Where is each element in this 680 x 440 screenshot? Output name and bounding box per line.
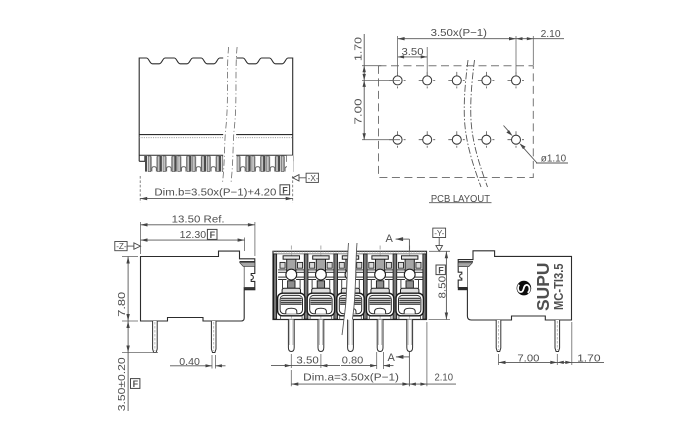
svg-text:-Y-: -Y- — [434, 229, 444, 238]
svg-text:Dim.a=3.50x(P−1): Dim.a=3.50x(P−1) — [303, 372, 399, 384]
svg-text:7.00: 7.00 — [353, 98, 365, 124]
svg-text:F: F — [282, 185, 288, 195]
svg-text:ø1.10: ø1.10 — [541, 153, 567, 165]
svg-text:MC-TI3.5: MC-TI3.5 — [551, 264, 566, 311]
svg-text:F: F — [133, 379, 139, 389]
svg-text:7.80: 7.80 — [116, 292, 128, 317]
svg-text:F: F — [438, 265, 444, 275]
svg-text:2.10: 2.10 — [541, 28, 561, 40]
svg-text:8.50: 8.50 — [436, 276, 448, 299]
svg-text:12.30: 12.30 — [180, 229, 207, 241]
svg-text:2.10: 2.10 — [435, 372, 454, 384]
svg-text:-Z-: -Z- — [116, 242, 127, 251]
svg-text:7.00: 7.00 — [517, 352, 539, 364]
svg-text:F: F — [210, 230, 216, 240]
svg-text:-X-: -X- — [308, 174, 319, 183]
svg-text:3.50x(P−1): 3.50x(P−1) — [431, 27, 487, 39]
svg-text:0.40: 0.40 — [179, 356, 200, 368]
svg-text:3.50±0.20: 3.50±0.20 — [116, 357, 128, 411]
svg-text:13.50 Ref.: 13.50 Ref. — [172, 214, 225, 226]
svg-text:1.70: 1.70 — [353, 37, 365, 61]
svg-text:SUPU: SUPU — [533, 263, 553, 312]
svg-text:A: A — [386, 233, 394, 245]
svg-text:3.50: 3.50 — [296, 354, 318, 366]
svg-text:0.80: 0.80 — [342, 354, 364, 366]
svg-text:3.50: 3.50 — [402, 46, 424, 58]
svg-text:1.70: 1.70 — [577, 352, 601, 364]
svg-text:A: A — [388, 352, 396, 364]
svg-text:Dim.b=3.50x(P−1)+4.20: Dim.b=3.50x(P−1)+4.20 — [154, 187, 276, 199]
